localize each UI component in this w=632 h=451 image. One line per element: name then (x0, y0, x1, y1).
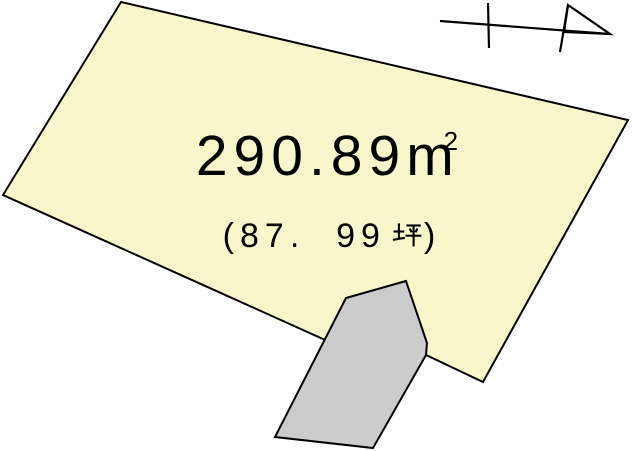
north-arrow-head (564, 5, 610, 34)
tsubo-label: (87. 99 ) (32, 217, 632, 256)
area-value: 290.89 (196, 124, 406, 188)
tsubo-kanji-glyph (392, 218, 422, 251)
area-unit: m2 (406, 124, 458, 188)
north-arrow-icon (440, 3, 610, 52)
tsubo-suffix: ) (424, 217, 441, 255)
land-plot-diagram: 290.89m2 (87. 99 ) (0, 0, 632, 451)
area-label: 290.89m2 (22, 123, 632, 189)
area-unit-superscript: 2 (444, 126, 458, 157)
tsubo-prefix: (87. 99 (223, 217, 386, 255)
land-parcel-shape (3, 2, 628, 382)
north-arrow-tick (488, 3, 489, 48)
